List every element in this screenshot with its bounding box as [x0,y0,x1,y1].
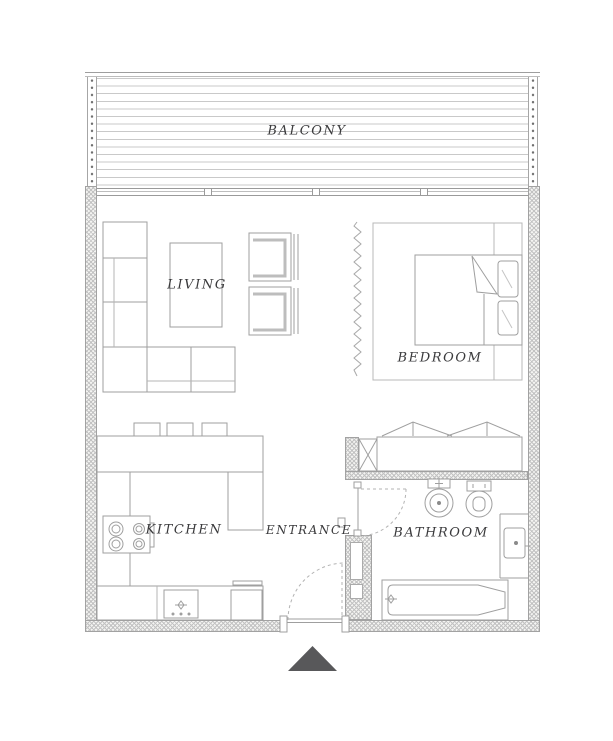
balcony-railing-left [87,77,97,186]
balcony-railing-right [528,77,538,186]
wall-bathroom-left [345,535,372,620]
faucet-icon [388,595,394,603]
window-mullion [420,188,428,196]
pillow [498,261,518,297]
pillow [498,301,518,335]
door-swing-arc [288,563,345,620]
sink-vanity [500,514,530,578]
window-mullion [312,188,320,196]
wardrobe [377,422,522,471]
wall-left [85,186,97,632]
window-mullion [204,188,212,196]
room-label-bathroom: BATHROOM [393,526,488,541]
room-label-kitchen: KITCHEN [146,523,223,538]
armchair [249,233,298,281]
kitchen-sink [164,590,198,618]
wall-wardrobe-bottom [345,471,528,480]
entrance-niche-shelf [350,542,363,580]
sofa [103,222,235,392]
bed [415,255,522,345]
wall-bottom-left [85,620,281,632]
room-label-entrance: ENTRANCE [266,523,352,537]
column-shaft [359,439,377,471]
armchair [249,287,298,335]
floor-plan: BALCONY LIVING BEDROOM KITCHEN ENTRANCE … [0,0,613,741]
balcony-outer-edge [85,72,540,77]
faucet-icon [178,601,184,609]
toilet [466,481,492,517]
bathtub [382,580,508,620]
entrance-niche-shelf [350,584,363,599]
wall-bottom-right [348,620,540,632]
curtain-divider [354,222,361,376]
bar-stool [134,423,227,436]
room-label-balcony: BALCONY [267,124,346,139]
room-label-bedroom: BEDROOM [397,351,482,366]
dishwasher [231,581,262,620]
wall-right [528,186,540,632]
room-label-living: LIVING [167,278,227,293]
entrance-arrow-icon [288,646,337,671]
entrance-door [280,563,349,632]
bidet [425,479,453,517]
